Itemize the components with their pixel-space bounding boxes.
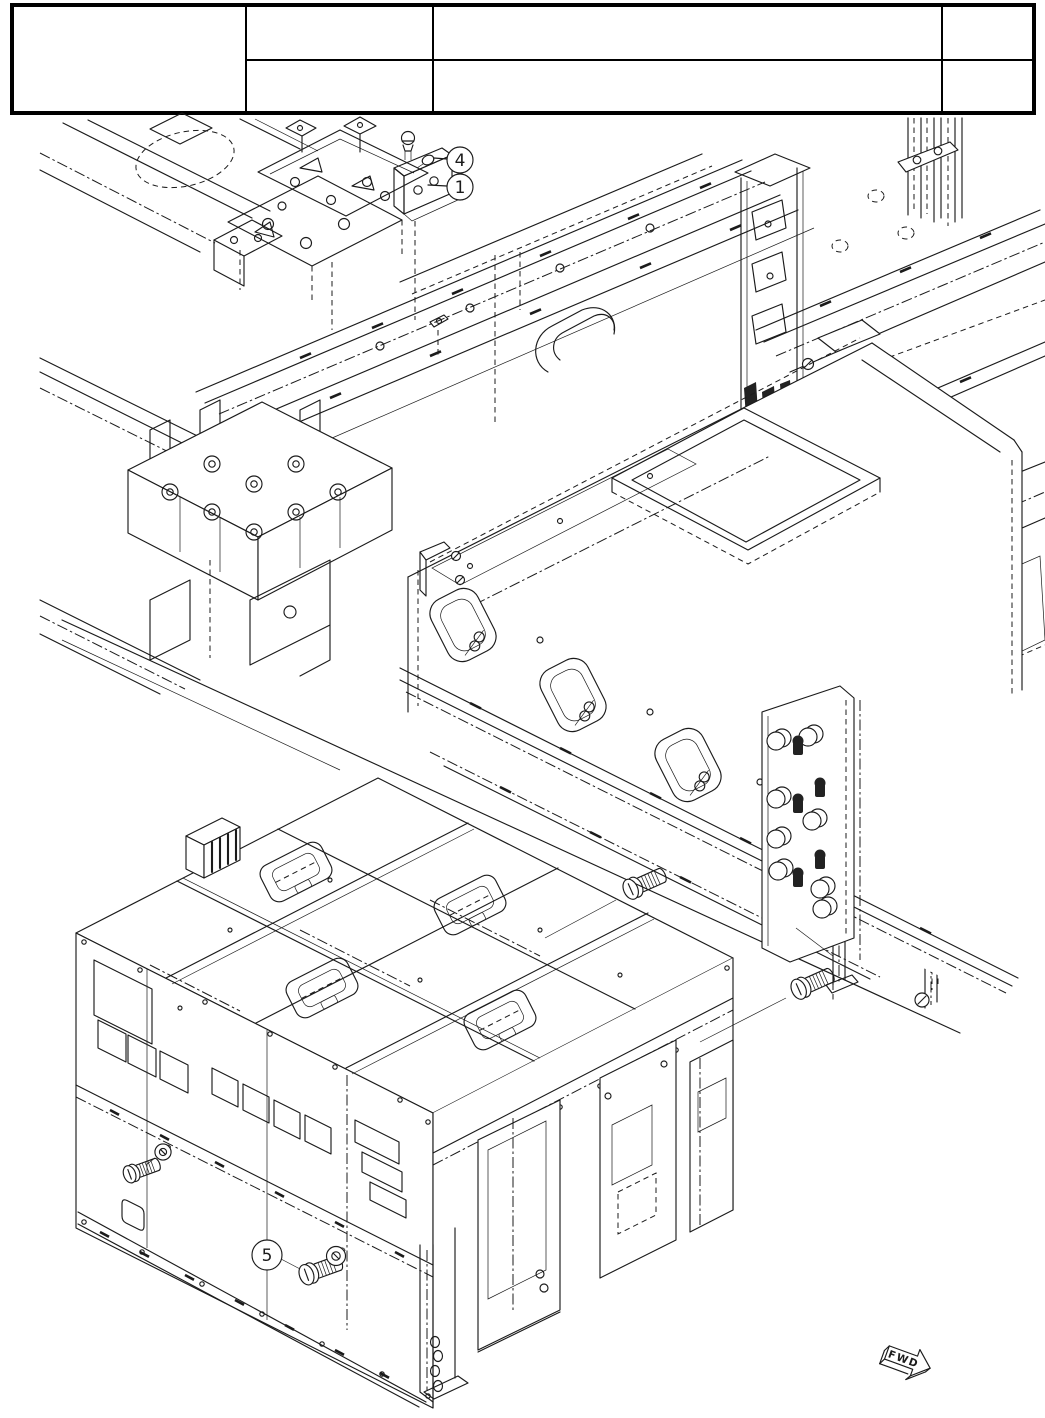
callout-1-label: 1 [455, 178, 466, 198]
left-carriage-assembly [40, 358, 392, 694]
fwd-arrow-icon: FWD [878, 1338, 935, 1386]
callout-4-label: 4 [455, 151, 466, 171]
callout-1: 1 [428, 174, 473, 200]
machine-module [76, 778, 733, 1408]
right-frame-columns [898, 118, 962, 226]
fastener-symbol [155, 1144, 171, 1160]
main-rail-beam [196, 154, 814, 452]
fastener-symbol [327, 1247, 346, 1266]
callout-5-label: 5 [262, 1246, 273, 1266]
callout-5: 5 [252, 1240, 282, 1270]
sub-tower-middle [478, 1100, 560, 1352]
sub-tower-right [600, 1040, 676, 1278]
parts-list-page: 4 1 5 FWD [0, 0, 1045, 1418]
leg-tower [420, 1228, 468, 1402]
top-left-frame-panels [40, 113, 318, 252]
floating-thumbscrew [788, 964, 837, 1001]
exploded-parts-diagram: 4 1 5 FWD [0, 0, 1045, 1418]
hose-handle [536, 308, 615, 372]
mount-bracket-cluster [214, 117, 428, 302]
sub-tower-far-right [690, 1040, 733, 1232]
